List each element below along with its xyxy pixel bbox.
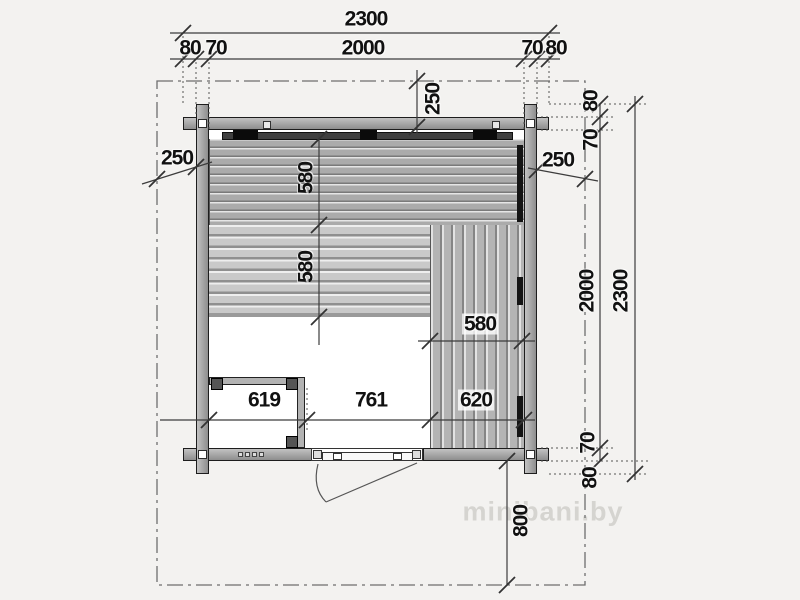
- backrest-block: [473, 129, 497, 140]
- dim-bench-mid-depth: 580: [296, 251, 317, 283]
- dim-interior-width: 2000: [342, 38, 385, 59]
- dim-overhang-top: 250: [423, 83, 444, 115]
- dim-wall-bottom: 70: [578, 432, 599, 453]
- lower-bench: [209, 225, 430, 317]
- corner-joint: [198, 119, 207, 128]
- dowel-mark: [263, 121, 271, 129]
- door-jamb: [412, 450, 421, 459]
- dim-wall-top: 70: [581, 129, 602, 150]
- backrest-block: [233, 129, 258, 140]
- vent-mark: [238, 452, 243, 457]
- dim-bench-top-depth: 580: [296, 162, 317, 194]
- dim-interior-height: 2000: [577, 270, 598, 313]
- floor-plan-canvas: minibani.by: [0, 0, 800, 600]
- door-hinge: [393, 453, 402, 460]
- door-hinge: [333, 453, 342, 460]
- upper-bench: [209, 139, 524, 225]
- watermark: minibani.by: [462, 497, 623, 528]
- dim-log-end-top: 80: [581, 90, 602, 111]
- vent-mark: [245, 452, 250, 457]
- dim-wall-right: 70: [521, 38, 542, 59]
- left-wall: [196, 104, 209, 474]
- door-swing: [316, 463, 417, 502]
- room-post: [286, 378, 298, 390]
- room-wall-right: [297, 377, 305, 448]
- dim-overall-width: 2300: [345, 9, 388, 30]
- dim-log-end-left: 80: [179, 38, 200, 59]
- vent-mark: [252, 452, 257, 457]
- corner-joint: [526, 119, 535, 128]
- door-jamb: [313, 450, 322, 459]
- dim-overall-height: 2300: [611, 270, 632, 313]
- dim-wall-left: 70: [205, 38, 226, 59]
- side-bench: [430, 225, 524, 448]
- wall-strip: [517, 396, 523, 437]
- wall-strip: [517, 145, 523, 222]
- dim-log-end-bottom: 80: [580, 467, 601, 488]
- dim-bench-right-width: 580: [462, 314, 498, 335]
- dim-overhang-left: 250: [161, 148, 193, 169]
- room-post: [211, 378, 223, 390]
- corner-joint: [526, 450, 535, 459]
- dim-overhang-right: 250: [542, 150, 574, 171]
- corner-joint: [198, 450, 207, 459]
- vent-mark: [259, 452, 264, 457]
- room-post: [286, 436, 298, 448]
- dim-log-end-right: 80: [545, 38, 566, 59]
- wall-strip: [517, 277, 523, 305]
- dowel-mark: [492, 121, 500, 129]
- right-wall: [524, 104, 537, 474]
- backrest-block: [360, 129, 377, 140]
- dim-bench-bottom-width: 620: [458, 390, 494, 411]
- dim-porch-depth: 800: [511, 505, 532, 537]
- dim-floor-opening: 761: [355, 390, 387, 411]
- dim-room-width: 619: [248, 390, 280, 411]
